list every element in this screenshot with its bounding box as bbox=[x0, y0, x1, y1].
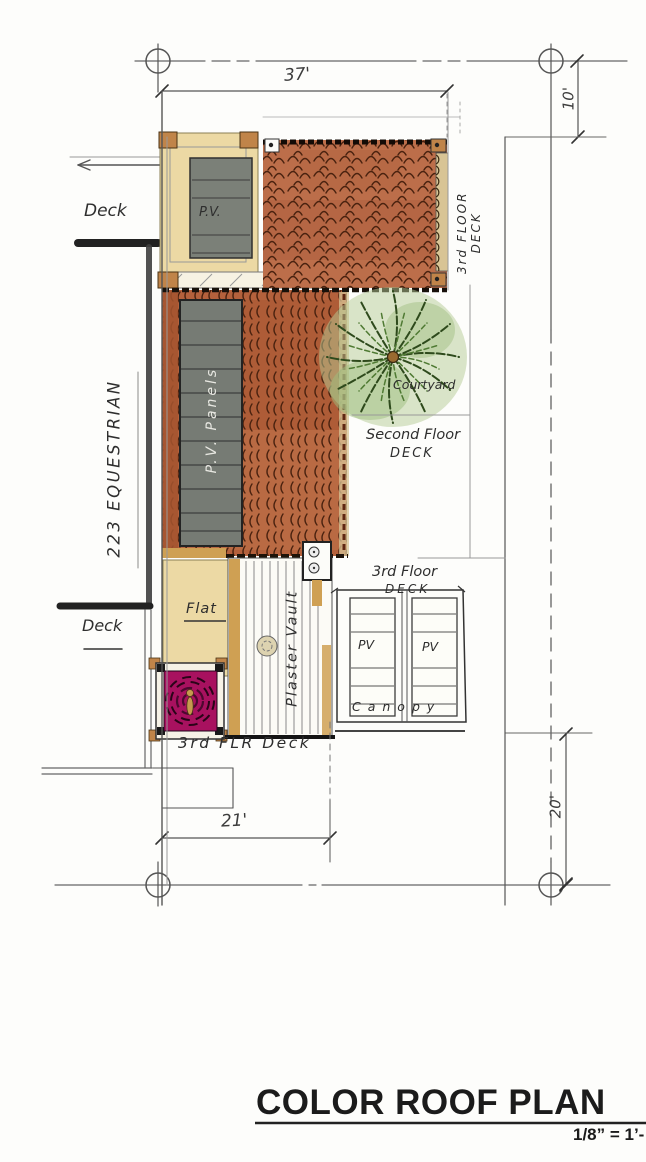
third-floor-deck-side-line2: DECK bbox=[470, 177, 484, 289]
dim-right-lower: 20' bbox=[547, 787, 564, 827]
second-floor-deck-label: DECK bbox=[390, 447, 434, 462]
dim-top-width: 37' bbox=[283, 65, 311, 86]
flat-roof-label: Flat bbox=[186, 601, 217, 618]
plaster-vault-label: Plaster Vault bbox=[285, 562, 302, 734]
pv-panels-label: P.V. Panels bbox=[204, 330, 220, 510]
sheet-title: COLOR ROOF PLAN bbox=[256, 1083, 606, 1123]
plaster-vault-roof bbox=[225, 542, 335, 737]
deck-lower-label: Deck bbox=[82, 617, 122, 635]
third-floor-deck-side-line1: 3rd FLOOR bbox=[456, 177, 470, 289]
color-roof-plan-sheet: Deck 223 EQUESTRIAN Deck P.V. P.V. Panel… bbox=[0, 0, 646, 1162]
roof-plan-drawing bbox=[0, 0, 646, 1162]
pv-canopy-right-label: PV bbox=[422, 640, 438, 654]
third-floor-deck-label: DECK bbox=[385, 583, 430, 597]
pv-small-label: P.V. bbox=[199, 206, 221, 221]
sheet-scale: 1/8” = 1’- bbox=[573, 1125, 644, 1145]
magenta-feature bbox=[149, 658, 227, 741]
second-floor-label: Second Floor bbox=[366, 427, 460, 444]
palm-tree bbox=[319, 287, 467, 427]
third-floor-label: 3rd Floor bbox=[372, 564, 437, 581]
third-flr-deck-label: 3rd FLR Deck bbox=[178, 735, 311, 753]
deck-upper-label: Deck bbox=[84, 202, 127, 222]
courtyard-label: Courtyard bbox=[393, 378, 455, 392]
dim-bottom-left: 21' bbox=[221, 811, 248, 832]
canopy-label: Canopy bbox=[352, 700, 441, 714]
pv-canopy-left-label: PV bbox=[358, 638, 374, 652]
third-floor-deck-side-label: 3rd FLOOR DECK bbox=[456, 177, 484, 289]
street-label: 223 EQUESTRIAN bbox=[106, 368, 125, 568]
left-neighbor-walls bbox=[42, 157, 162, 774]
dim-right-upper: 10' bbox=[560, 79, 577, 119]
upper-tile-roof bbox=[263, 139, 448, 288]
